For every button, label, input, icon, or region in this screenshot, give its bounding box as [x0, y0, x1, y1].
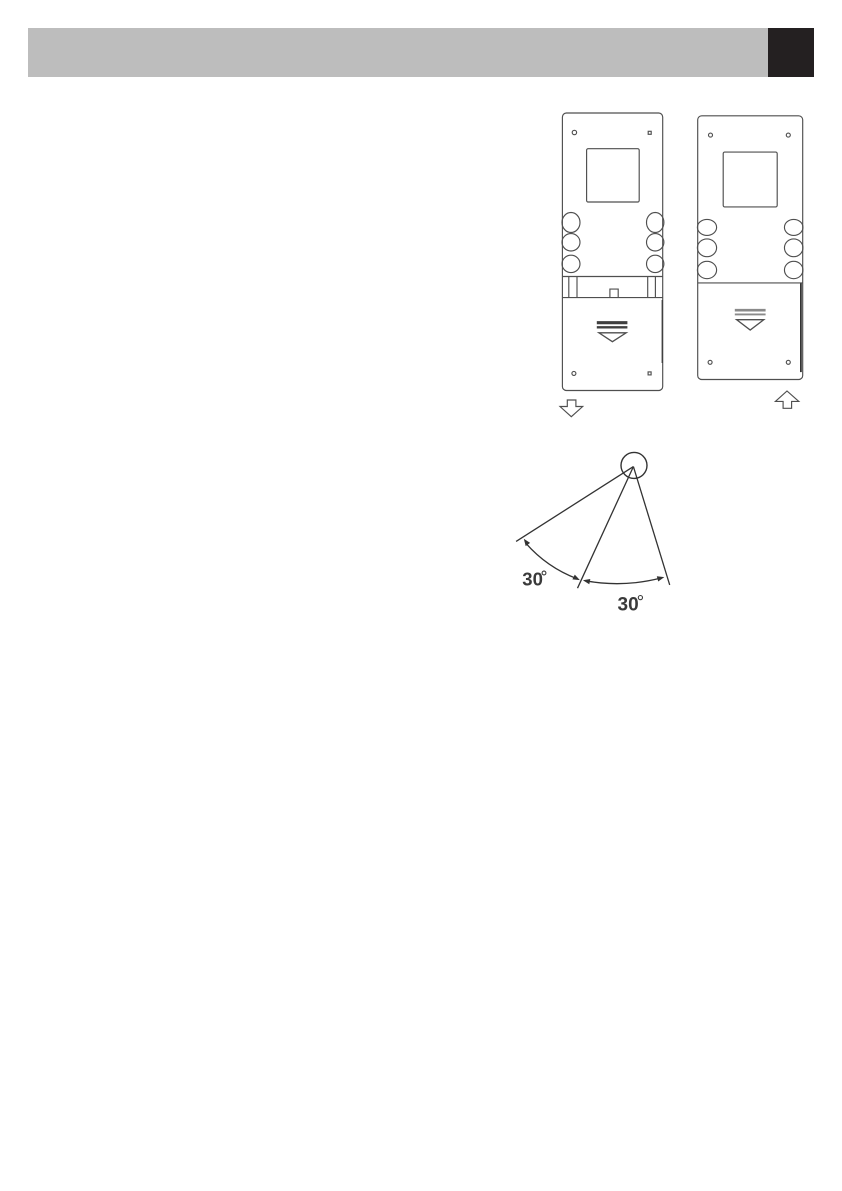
svg-text:30: 30: [522, 568, 543, 589]
svg-text:30: 30: [618, 594, 639, 615]
